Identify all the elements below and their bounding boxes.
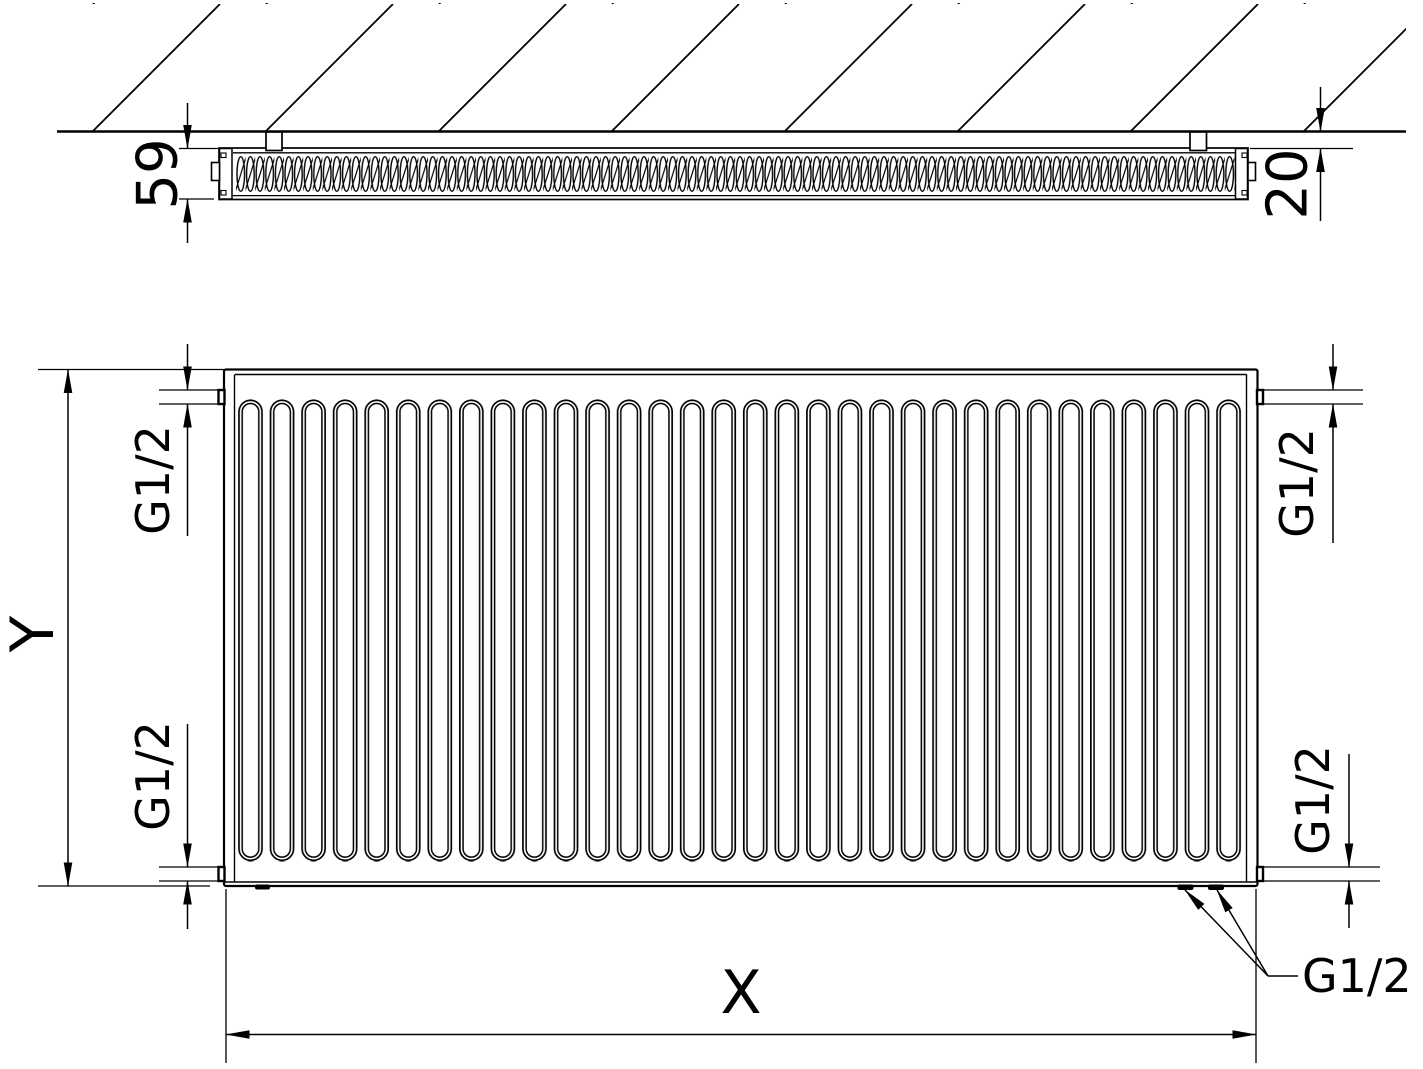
width-value: X — [720, 958, 761, 1028]
label-thread-bottom-ports: G1/2 — [1185, 890, 1412, 1003]
bottom-port-right-1 — [1178, 885, 1194, 891]
wall-bracket-left — [266, 132, 282, 151]
dimension-width-x: X — [226, 889, 1256, 1063]
bottom-port-right-2 — [1208, 885, 1224, 891]
stub-top-right — [1257, 390, 1263, 404]
end-cap-tab — [221, 153, 226, 158]
dimension-height-y: Y — [0, 370, 224, 887]
convector-fins — [236, 155, 1241, 193]
thread-bottom-right-value: G1/2 — [1286, 745, 1340, 855]
depth-value: 59 — [126, 138, 191, 209]
stub-bottom-right — [1257, 867, 1263, 881]
stub-right-top-view — [1248, 163, 1256, 181]
wall-gap-value: 20 — [1256, 148, 1321, 219]
radiator-technical-drawing: 59 20 Y — [0, 0, 1423, 1069]
thread-top-right-value: G1/2 — [1270, 428, 1324, 538]
wall-bracket-right — [1190, 132, 1207, 151]
wall-hatching — [57, 3, 1406, 131]
thread-top-left-value: G1/2 — [126, 425, 180, 535]
bottom-port-left — [255, 885, 270, 890]
panel-channels — [236, 399, 1246, 862]
dimension-thread-top-left: G1/2 — [126, 344, 225, 536]
dimension-thread-top-right: G1/2 — [1258, 344, 1363, 543]
thread-bottom-left-value: G1/2 — [126, 721, 180, 831]
stub-bottom-left — [219, 867, 225, 881]
thread-bottom-ports-value: G1/2 — [1302, 949, 1412, 1003]
stub-left-top-view — [212, 163, 220, 181]
height-value: Y — [0, 615, 68, 653]
stub-top-left — [219, 390, 225, 404]
end-cap-tab — [221, 191, 226, 196]
end-cap-tab — [1242, 191, 1247, 196]
end-cap-tab — [1242, 153, 1247, 158]
dimension-thread-bottom-right: G1/2 — [1258, 745, 1380, 928]
top-view: 59 20 — [57, 3, 1406, 243]
front-view: Y X G1/2 G1/2 — [0, 344, 1412, 1063]
dimension-thread-bottom-left: G1/2 — [126, 721, 225, 929]
